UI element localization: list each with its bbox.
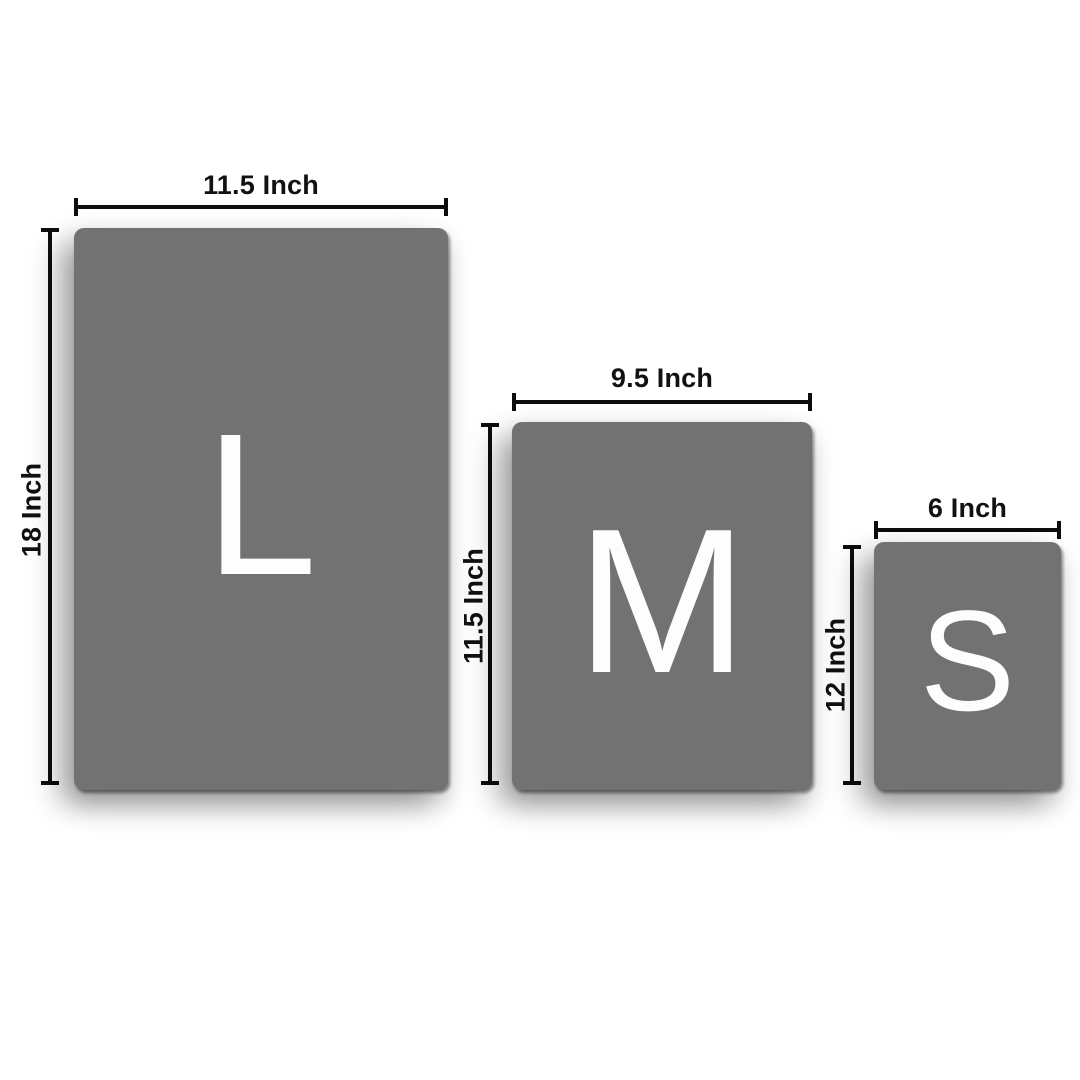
size-comparison-diagram: 11.5 Inch 18 Inch L 9.5 Inch 11.5 Inch M… (0, 0, 1080, 1080)
width-dimension-line-medium (512, 400, 812, 404)
size-letter-medium: M (576, 498, 748, 714)
height-dimension-line-medium (488, 423, 492, 785)
size-letter-large: L (205, 403, 317, 615)
size-card-large: L (74, 228, 448, 790)
height-dimension-label-small: 12 Inch (821, 618, 852, 712)
height-dimension-line-large (48, 228, 52, 785)
width-dimension-line-small (874, 528, 1061, 532)
width-dimension-label-medium: 9.5 Inch (512, 363, 812, 394)
height-dimension-line-small (850, 545, 854, 785)
size-card-small: S (874, 542, 1061, 790)
width-dimension-label-large: 11.5 Inch (74, 170, 448, 201)
size-card-medium: M (512, 422, 812, 790)
height-dimension-label-large: 18 Inch (17, 463, 48, 557)
width-dimension-label-small: 6 Inch (874, 493, 1061, 524)
width-dimension-line-large (74, 205, 448, 209)
size-letter-small: S (920, 590, 1015, 743)
height-dimension-label-medium: 11.5 Inch (459, 548, 490, 664)
